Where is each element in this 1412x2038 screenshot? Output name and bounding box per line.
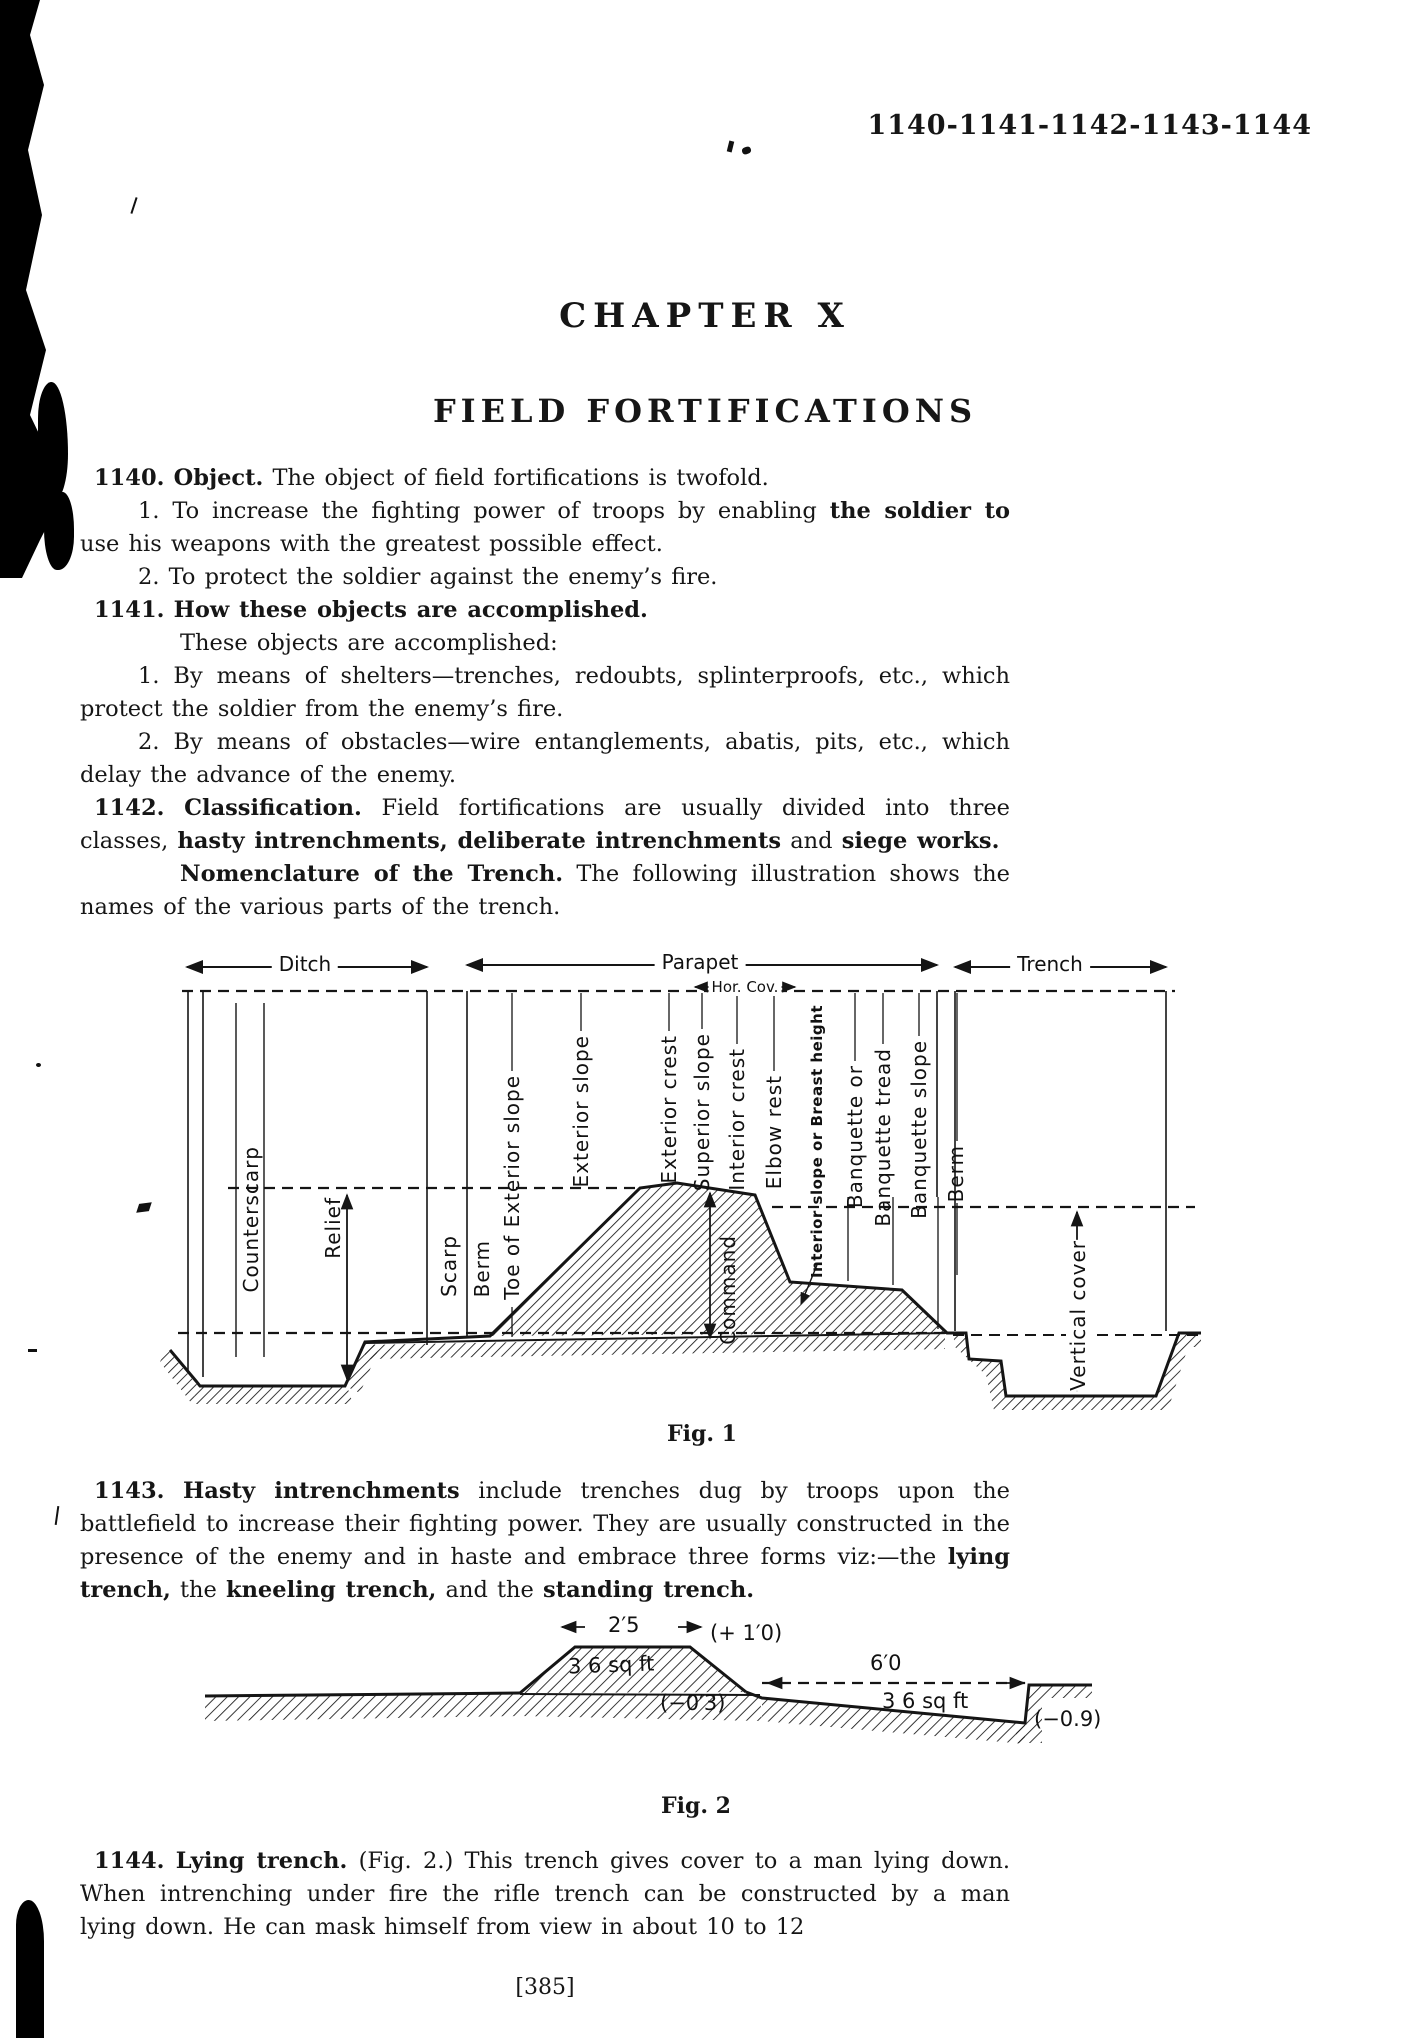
fig1-label-banquette-slope: Banquette slope <box>907 1040 931 1219</box>
fig1-label-banquette-tread: Banquette tread <box>871 1048 895 1227</box>
fig1-label-toe-exterior-slope: Toe of Exterior slope <box>500 1075 524 1300</box>
paragraph-1142: 1142. Classification. Field fortificatio… <box>80 792 1010 858</box>
section-title: FIELD FORTIFICATIONS <box>425 392 985 430</box>
fig1-dim-parapet: Parapet <box>655 950 746 974</box>
page-header-paragraph-range: 1140-1141-1142-1143-1144 <box>867 110 1312 141</box>
fig2-label-trench-area: 3 6 sq ft <box>882 1689 968 1713</box>
fig1-label-interior-slope: Interior slope or Breast height <box>808 1005 826 1278</box>
fig2-label-trench-width: 6′0 <box>870 1651 902 1675</box>
paragraph-1141: 1141. How these objects are accomplished… <box>80 594 1010 627</box>
paragraph-1140-item-2: 2. To protect the soldier against the en… <box>80 561 1010 594</box>
fig1-label-berm-right: Berm <box>944 1145 968 1202</box>
scan-artifact-bottom-bar <box>16 1900 44 2038</box>
scan-speck <box>55 1506 60 1525</box>
paragraph-nomenclature: Nomenclature of the Trench. The followin… <box>80 858 1010 924</box>
scan-speck <box>136 1202 152 1213</box>
fig2-label-scrape-depth: (−0′3) <box>660 1691 725 1715</box>
fig1-label-scarp: Scarp <box>437 1235 461 1297</box>
scan-speck <box>36 1063 41 1067</box>
paragraph-block-1140-1142: 1140. Object. The object of field fortif… <box>80 462 1010 924</box>
paragraph-1141-item-2: 2. By means of obstacles—wire entangleme… <box>80 726 1010 792</box>
paragraph-1141-item-1: 1. By means of shelters—trenches, redoub… <box>80 660 1010 726</box>
fig1-dim-hor-cov: Hor. Cov. <box>709 978 782 996</box>
scan-artifact-bulge2 <box>44 492 74 570</box>
fig1-dim-trench: Trench <box>1010 952 1090 976</box>
paragraph-block-1143: 1143. Hasty intrenchments include trench… <box>80 1475 1010 1607</box>
fig1-label-exterior-crest: Exterior crest <box>657 1035 681 1184</box>
figure-2-lying-trench: 2′5 (+ 1′0) 3 6 sq ft (−0′3) 6′0 3 6 sq … <box>170 1595 1180 1795</box>
fig2-label-trench-depth: (−0.9) <box>1034 1707 1101 1731</box>
fig2-label-parapet-area: 3 6 sq ft <box>568 1652 655 1679</box>
fig1-dim-ditch: Ditch <box>272 952 338 976</box>
fig1-label-interior-crest: Interior crest <box>725 1048 749 1191</box>
figure-1-trench-nomenclature: Ditch Parapet Trench Hor. Cov. Countersc… <box>160 945 1205 1450</box>
paragraph-1140-item-1: 1. To increase the fighting power of tro… <box>80 495 1010 561</box>
fig1-label-relief: Relief <box>321 1197 345 1259</box>
chapter-title: CHAPTER X <box>430 296 980 336</box>
fig1-label-berm-left: Berm <box>470 1240 494 1297</box>
figure-1-caption: Fig. 1 <box>552 1421 852 1447</box>
paragraph-1143: 1143. Hasty intrenchments include trench… <box>80 1475 1010 1607</box>
fig1-label-superior-slope: Superior slope <box>690 1033 714 1191</box>
fig1-label-vertical-cover: Vertical cover <box>1066 1240 1090 1391</box>
scan-speck <box>130 197 137 214</box>
scan-artifact-bulge <box>38 382 68 502</box>
paragraph-block-1144: 1144. Lying trench. (Fig. 2.) This trenc… <box>80 1845 1010 1944</box>
paragraph-1140: 1140. Object. The object of field fortif… <box>80 462 1010 495</box>
fig2-label-top-height: (+ 1′0) <box>710 1621 782 1645</box>
fig1-label-elbow-rest: Elbow rest <box>762 1075 786 1189</box>
paragraph-1141-intro: These objects are accomplished: <box>80 627 1010 660</box>
scan-speck <box>741 146 752 156</box>
scan-speck <box>28 1349 37 1352</box>
fig1-label-command: Command <box>716 1235 740 1345</box>
fig1-label-exterior-slope: Exterior slope <box>569 1035 593 1187</box>
scan-speck <box>727 141 735 153</box>
figure-2-caption: Fig. 2 <box>546 1793 846 1819</box>
fig2-label-top-width: 2′5 <box>608 1613 640 1637</box>
fig1-label-banquette-or: Banquette or <box>843 1065 867 1208</box>
fig1-drawing <box>160 945 1205 1450</box>
fig1-label-counterscarp: Counterscarp <box>239 1146 263 1293</box>
paragraph-1144: 1144. Lying trench. (Fig. 2.) This trenc… <box>80 1845 1010 1944</box>
page-number: [385] <box>80 1975 1010 2000</box>
